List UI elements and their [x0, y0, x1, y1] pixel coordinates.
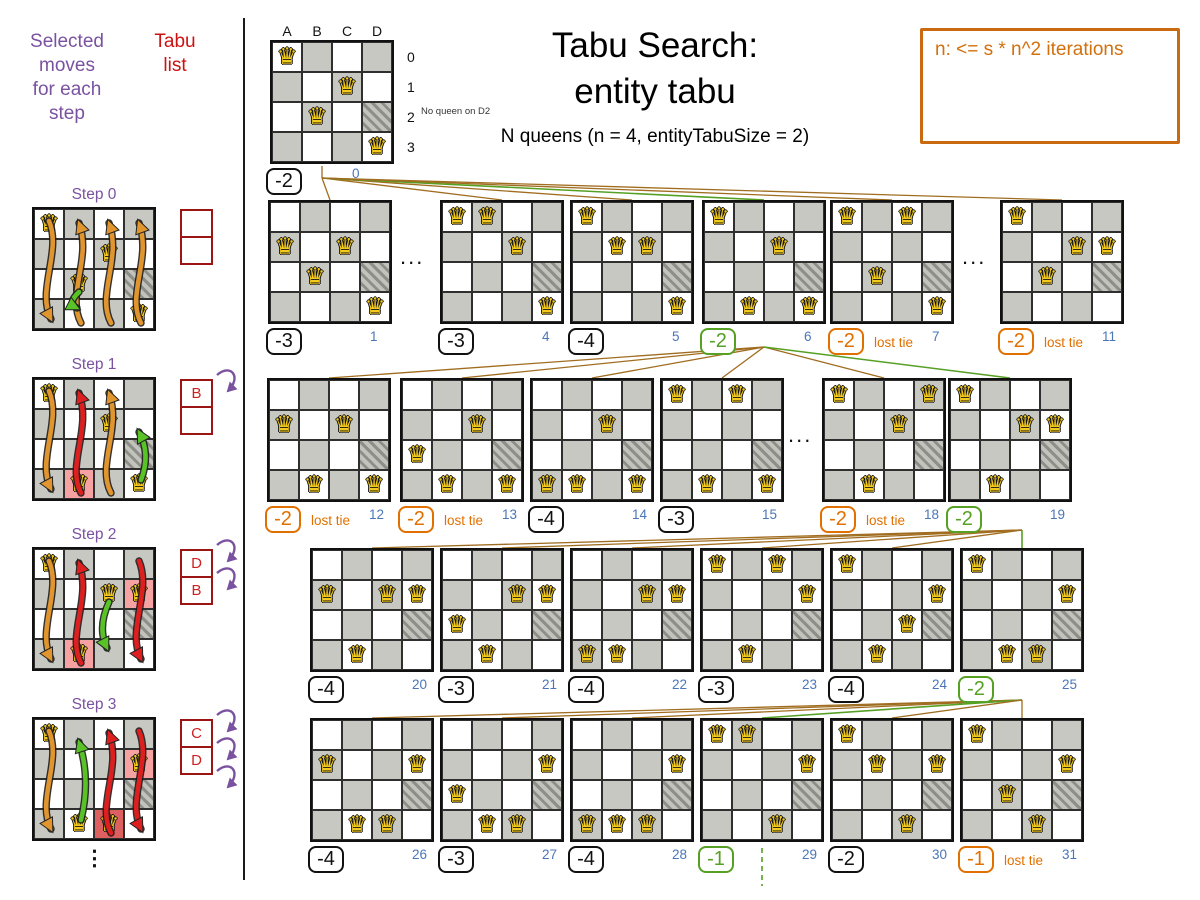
board-cell-A1: [962, 580, 992, 610]
board-cell-A3: [832, 810, 862, 840]
queen-icon: ♛: [364, 473, 385, 496]
board-cell-B2: ♛: [302, 102, 332, 132]
board-cell-D0: [922, 720, 952, 750]
board-cell-D3: ♛: [622, 470, 652, 500]
board-cell-B0: [862, 202, 892, 232]
board-cell-D3: ♛: [362, 132, 392, 162]
lost-tie-label: lost tie: [444, 513, 483, 528]
board-cell-D2: [922, 262, 952, 292]
board-cell-A1: [532, 410, 562, 440]
tabu-slot-2-0: D: [180, 549, 213, 578]
queen-icon: ♛: [667, 583, 688, 606]
board-cell-B2: [299, 440, 329, 470]
board-cell-D3: [402, 640, 432, 670]
board-cell-B2: [732, 780, 762, 810]
board-cell-C2: [632, 262, 662, 292]
queen-icon: ♛: [467, 413, 488, 436]
score-badge-25: -2: [958, 676, 994, 703]
board-cell-D0: [922, 550, 952, 580]
board-cell-C1: ♛: [329, 410, 359, 440]
board-cell-C1: [632, 750, 662, 780]
tabu-slot-1-1: [180, 406, 213, 435]
board-cell-A0: ♛: [1002, 202, 1032, 232]
board-cell-B1: [862, 232, 892, 262]
queen-icon: ♛: [507, 235, 528, 258]
board-cell-C2: [632, 780, 662, 810]
board-cell-A2: [1002, 262, 1032, 292]
board-cell-C0: [762, 720, 792, 750]
queen-icon: ♛: [377, 813, 398, 836]
board-cell-D2: [1092, 262, 1122, 292]
board-cell-B1: [342, 580, 372, 610]
board-cell-B1: [732, 750, 762, 780]
board-cell-C3: [722, 470, 752, 500]
board-cell-D0: [402, 720, 432, 750]
board-cell-B2: [342, 780, 372, 810]
board-cell-C1: ♛: [372, 580, 402, 610]
board-index-4: 4: [542, 329, 550, 344]
board-cell-C0: [892, 720, 922, 750]
board-cell-D1: ♛: [922, 580, 952, 610]
queen-icon: ♛: [305, 265, 326, 288]
board-cell-A1: [832, 750, 862, 780]
board-cell-A3: [272, 132, 302, 162]
board-cell-A2: [832, 780, 862, 810]
board-cell-A3: [702, 810, 732, 840]
board-cell-D2: [1052, 610, 1082, 640]
board-cell-A3: [312, 810, 342, 840]
root-board: ♛♛♛♛: [270, 40, 394, 164]
board-index-26: 26: [412, 847, 427, 862]
board-index-6: 6: [804, 329, 812, 344]
score-badge-28: -4: [568, 846, 604, 873]
board-cell-C2: [502, 780, 532, 810]
board-cell-D1: ♛: [532, 580, 562, 610]
board-14: ♛♛♛♛: [530, 378, 654, 502]
board-cell-C1: ♛: [592, 410, 622, 440]
board-25: ♛♛♛♛: [960, 548, 1084, 672]
board-cell-C0: [632, 550, 662, 580]
score-badge-31: -1: [958, 846, 994, 873]
board-cell-A3: [442, 640, 472, 670]
tabu-insert-arrow-icon: [213, 365, 245, 399]
board-cell-D0: [492, 380, 522, 410]
board-cell-C1: ♛: [330, 232, 360, 262]
board-cell-B2: [472, 610, 502, 640]
board-cell-C2: [764, 262, 794, 292]
queen-icon: ♛: [867, 643, 888, 666]
board-cell-A2: [572, 780, 602, 810]
queen-icon: ♛: [607, 813, 628, 836]
board-cell-B3: ♛: [602, 810, 632, 840]
board-cell-A3: [962, 810, 992, 840]
board-index-22: 22: [672, 677, 687, 692]
board-cell-B0: [734, 202, 764, 232]
tabu-slot-3-1: D: [180, 746, 213, 775]
board-cell-A3: [269, 470, 299, 500]
board-cell-C2: [502, 262, 532, 292]
board-cell-C1: [722, 410, 752, 440]
board-cell-D0: [792, 550, 822, 580]
queen-icon: ♛: [334, 413, 355, 436]
board-cell-B0: ♛: [732, 720, 762, 750]
tabu-slot-0-0: [180, 209, 213, 238]
board-cell-C1: ♛: [884, 410, 914, 440]
board-cell-C1: ♛: [1062, 232, 1092, 262]
board-cell-B1: [734, 232, 764, 262]
queen-icon: ♛: [407, 753, 428, 776]
root-row-label: 2: [407, 109, 415, 125]
board-cell-B3: [862, 292, 892, 322]
board-cell-A0: ♛: [662, 380, 692, 410]
board-7: ♛♛♛♛: [830, 200, 954, 324]
board-cell-D0: [792, 720, 822, 750]
queen-icon: ♛: [307, 105, 328, 128]
board-cell-C3: [632, 640, 662, 670]
queen-icon: ♛: [897, 613, 918, 636]
board-cell-A0: ♛: [824, 380, 854, 410]
board-cell-D0: [360, 202, 390, 232]
board-cell-B3: ♛: [432, 470, 462, 500]
board-cell-C1: ♛: [502, 580, 532, 610]
queen-icon: ♛: [837, 723, 858, 746]
board-cell-C2: [884, 440, 914, 470]
score-badge-15: -3: [658, 506, 694, 533]
root-row-label: 1: [407, 79, 415, 95]
board-cell-D0: ♛: [914, 380, 944, 410]
board-cell-C3: [892, 640, 922, 670]
queen-icon: ♛: [274, 413, 295, 436]
board-cell-A2: [702, 780, 732, 810]
board-cell-D3: [1052, 640, 1082, 670]
board-cell-D2: [792, 780, 822, 810]
board-cell-A2: [702, 610, 732, 640]
board-cell-C2: [1022, 780, 1052, 810]
queen-icon: ♛: [767, 553, 788, 576]
queen-icon: ♛: [769, 235, 790, 258]
board-cell-C1: [1022, 580, 1052, 610]
board-cell-D2: [622, 440, 652, 470]
board-cell-A2: [962, 610, 992, 640]
tabu-slot-2-1: B: [180, 576, 213, 605]
board-cell-C3: ♛: [632, 810, 662, 840]
board-cell-C2: ♛: [892, 610, 922, 640]
board-cell-C1: ♛: [632, 232, 662, 262]
board-index-20: 20: [412, 677, 427, 692]
board-cell-C1: [1022, 750, 1052, 780]
board-cell-C0: [1010, 380, 1040, 410]
board-cell-B1: [299, 410, 329, 440]
queen-icon: ♛: [955, 383, 976, 406]
board-cell-A3: [572, 292, 602, 322]
queen-icon: ♛: [1027, 813, 1048, 836]
board-cell-B2: [342, 610, 372, 640]
board-cell-A2: [532, 440, 562, 470]
board-cell-D2: [532, 780, 562, 810]
board-cell-B2: [854, 440, 884, 470]
board-cell-C0: [632, 720, 662, 750]
board-cell-C2: [632, 610, 662, 640]
board-cell-B0: [862, 550, 892, 580]
board-cell-D1: [360, 232, 390, 262]
board-cell-D1: ♛: [402, 580, 432, 610]
board-cell-D1: [362, 72, 392, 102]
tabu-insert-arrow-icon: [213, 563, 245, 597]
board-4: ♛♛♛♛: [440, 200, 564, 324]
board-cell-B1: [854, 410, 884, 440]
step-label-1: Step 1: [32, 356, 156, 374]
board-cell-C1: [892, 750, 922, 780]
board-cell-A0: ♛: [962, 550, 992, 580]
queen-icon: ♛: [275, 235, 296, 258]
board-cell-B3: [862, 810, 892, 840]
board-cell-D0: [752, 380, 782, 410]
board-cell-A2: [704, 262, 734, 292]
board-cell-A2: [824, 440, 854, 470]
board-cell-B3: [732, 810, 762, 840]
queen-icon: ♛: [607, 235, 628, 258]
queen-icon: ♛: [727, 383, 748, 406]
board-cell-B1: [992, 750, 1022, 780]
board-cell-C3: ♛: [892, 810, 922, 840]
board-cell-B3: ♛: [734, 292, 764, 322]
board-cell-C3: [592, 470, 622, 500]
row-ellipsis: ...: [962, 244, 986, 270]
queen-icon: ♛: [537, 583, 558, 606]
board-cell-A3: [824, 470, 854, 500]
continuation-ellipsis: ⋮: [84, 846, 105, 871]
board-index-0: 0: [352, 166, 360, 181]
queen-icon: ♛: [335, 235, 356, 258]
board-31: ♛♛♛♛: [960, 718, 1084, 842]
queen-icon: ♛: [697, 473, 718, 496]
board-11: ♛♛♛♛: [1000, 200, 1124, 324]
score-badge-11: -2: [998, 328, 1034, 355]
board-cell-A1: [832, 580, 862, 610]
board-cell-D1: [752, 410, 782, 440]
score-badge-1: -3: [266, 328, 302, 355]
queen-icon: ♛: [367, 135, 388, 158]
board-index-14: 14: [632, 507, 647, 522]
board-12: ♛♛♛♛: [267, 378, 391, 502]
move-arrows-step-0: [32, 207, 156, 331]
board-cell-D0: [532, 202, 562, 232]
board-cell-B3: [302, 132, 332, 162]
board-cell-A2: [962, 780, 992, 810]
board-cell-B3: ♛: [472, 810, 502, 840]
board-1: ♛♛♛♛: [268, 200, 392, 324]
queen-icon: ♛: [797, 583, 818, 606]
board-cell-B0: [299, 380, 329, 410]
root-column-label: B: [302, 23, 332, 39]
board-cell-D1: ♛: [402, 750, 432, 780]
board-cell-A1: ♛: [269, 410, 299, 440]
board-cell-B1: [432, 410, 462, 440]
board-cell-A1: [272, 72, 302, 102]
queen-icon: ♛: [537, 753, 558, 776]
board-cell-C1: ♛: [764, 232, 794, 262]
board-cell-A0: [572, 720, 602, 750]
score-badge-27: -3: [438, 846, 474, 873]
queen-icon: ♛: [1037, 265, 1058, 288]
queen-icon: ♛: [407, 443, 428, 466]
board-cell-B3: ♛: [342, 640, 372, 670]
board-cell-C1: ♛: [1010, 410, 1040, 440]
step-label-3: Step 3: [32, 696, 156, 714]
board-cell-C1: [892, 232, 922, 262]
row-ellipsis: ...: [400, 244, 424, 270]
board-cell-B1: [472, 750, 502, 780]
queen-icon: ♛: [447, 783, 468, 806]
board-cell-D1: ♛: [532, 750, 562, 780]
board-cell-A2: [269, 440, 299, 470]
root-row-label: 0: [407, 49, 415, 65]
board-cell-C3: ♛: [1022, 640, 1052, 670]
board-cell-A1: [950, 410, 980, 440]
board-cell-D3: [662, 640, 692, 670]
score-badge-0: -2: [266, 168, 302, 195]
board-cell-C1: ♛: [462, 410, 492, 440]
board-cell-D3: ♛: [794, 292, 824, 322]
board-cell-C0: [372, 720, 402, 750]
queen-icon: ♛: [507, 813, 528, 836]
queen-icon: ♛: [737, 723, 758, 746]
board-cell-B1: [980, 410, 1010, 440]
board-cell-A1: [832, 232, 862, 262]
board-cell-C1: [502, 750, 532, 780]
board-cell-D3: [1092, 292, 1122, 322]
queen-icon: ♛: [637, 235, 658, 258]
board-cell-A1: [442, 580, 472, 610]
tabu-list-header: Tabu list: [130, 30, 220, 78]
board-cell-A1: ♛: [270, 232, 300, 262]
board-cell-C0: [592, 380, 622, 410]
board-cell-C3: [1062, 292, 1092, 322]
board-6: ♛♛♛♛: [702, 200, 826, 324]
board-cell-B0: [602, 720, 632, 750]
board-cell-A0: ♛: [272, 42, 302, 72]
board-cell-D3: [792, 640, 822, 670]
board-cell-A0: ♛: [832, 202, 862, 232]
board-cell-B2: [692, 440, 722, 470]
board-cell-A0: [312, 550, 342, 580]
board-cell-A3: [312, 640, 342, 670]
board-cell-D1: ♛: [792, 750, 822, 780]
board-cell-B0: [854, 380, 884, 410]
board-cell-B2: [732, 610, 762, 640]
board-index-29: 29: [802, 847, 817, 862]
queen-icon: ♛: [667, 383, 688, 406]
board-cell-A3: [832, 640, 862, 670]
queen-icon: ♛: [757, 473, 778, 496]
board-cell-A0: ♛: [442, 202, 472, 232]
board-cell-C3: [329, 470, 359, 500]
board-index-31: 31: [1062, 847, 1077, 862]
board-cell-D2: [914, 440, 944, 470]
board-cell-A0: [442, 720, 472, 750]
board-cell-C2: [722, 440, 752, 470]
board-cell-D1: ♛: [1092, 232, 1122, 262]
board-cell-A2: ♛: [442, 610, 472, 640]
board-cell-A3: ♛: [572, 810, 602, 840]
board-19: ♛♛♛♛: [948, 378, 1072, 502]
board-cell-B1: [472, 232, 502, 262]
board-cell-D2: [662, 780, 692, 810]
board-cell-C2: [372, 610, 402, 640]
board-cell-A2: [832, 262, 862, 292]
board-cell-D3: [532, 810, 562, 840]
queen-icon: ♛: [507, 583, 528, 606]
board-cell-A1: [962, 750, 992, 780]
board-cell-D2: [532, 262, 562, 292]
board-cell-B3: [300, 292, 330, 322]
board-cell-D1: [662, 232, 692, 262]
board-cell-B1: [472, 580, 502, 610]
board-cell-B2: ♛: [862, 262, 892, 292]
diagram-canvas: Selected moves for each step Tabu list T…: [0, 0, 1200, 900]
board-cell-D2: [752, 440, 782, 470]
queen-icon: ♛: [477, 813, 498, 836]
lost-tie-label: lost tie: [874, 335, 913, 350]
board-30: ♛♛♛♛: [830, 718, 954, 842]
board-cell-D1: ♛: [662, 580, 692, 610]
board-cell-A1: [704, 232, 734, 262]
board-cell-C3: [332, 132, 362, 162]
queen-icon: ♛: [637, 583, 658, 606]
lost-tie-label: lost tie: [1044, 335, 1083, 350]
queen-icon: ♛: [985, 473, 1006, 496]
board-cell-D0: [622, 380, 652, 410]
board-cell-B3: ♛: [562, 470, 592, 500]
queen-icon: ♛: [537, 473, 558, 496]
board-20: ♛♛♛♛: [310, 548, 434, 672]
move-arrows-step-3: [32, 717, 156, 841]
board-cell-D2: [662, 262, 692, 292]
queen-icon: ♛: [867, 753, 888, 776]
queen-icon: ♛: [347, 643, 368, 666]
board-cell-D2: [922, 780, 952, 810]
board-cell-A1: [442, 232, 472, 262]
board-cell-C2: [592, 440, 622, 470]
board-cell-C0: [1022, 720, 1052, 750]
board-cell-B3: ♛: [992, 640, 1022, 670]
board-cell-A3: [442, 810, 472, 840]
board-cell-D0: [402, 550, 432, 580]
queen-icon: ♛: [567, 473, 588, 496]
score-badge-13: -2: [398, 506, 434, 533]
board-cell-A0: [312, 720, 342, 750]
board-cell-C3: [632, 292, 662, 322]
board-cell-B0: [602, 202, 632, 232]
board-index-19: 19: [1050, 507, 1065, 522]
board-cell-B2: [562, 440, 592, 470]
board-cell-B0: [342, 550, 372, 580]
queen-icon: ♛: [889, 413, 910, 436]
board-index-25: 25: [1062, 677, 1077, 692]
row-ellipsis: ...: [788, 422, 812, 448]
board-cell-A0: ♛: [950, 380, 980, 410]
board-cell-C3: [762, 640, 792, 670]
board-cell-A3: [950, 470, 980, 500]
board-index-24: 24: [932, 677, 947, 692]
board-cell-B0: [992, 550, 1022, 580]
board-cell-D0: [1052, 720, 1082, 750]
root-column-label: C: [332, 23, 362, 39]
score-badge-29: -1: [698, 846, 734, 873]
queen-icon: ♛: [577, 643, 598, 666]
board-cell-A2: [312, 610, 342, 640]
board-cell-C3: ♛: [502, 810, 532, 840]
